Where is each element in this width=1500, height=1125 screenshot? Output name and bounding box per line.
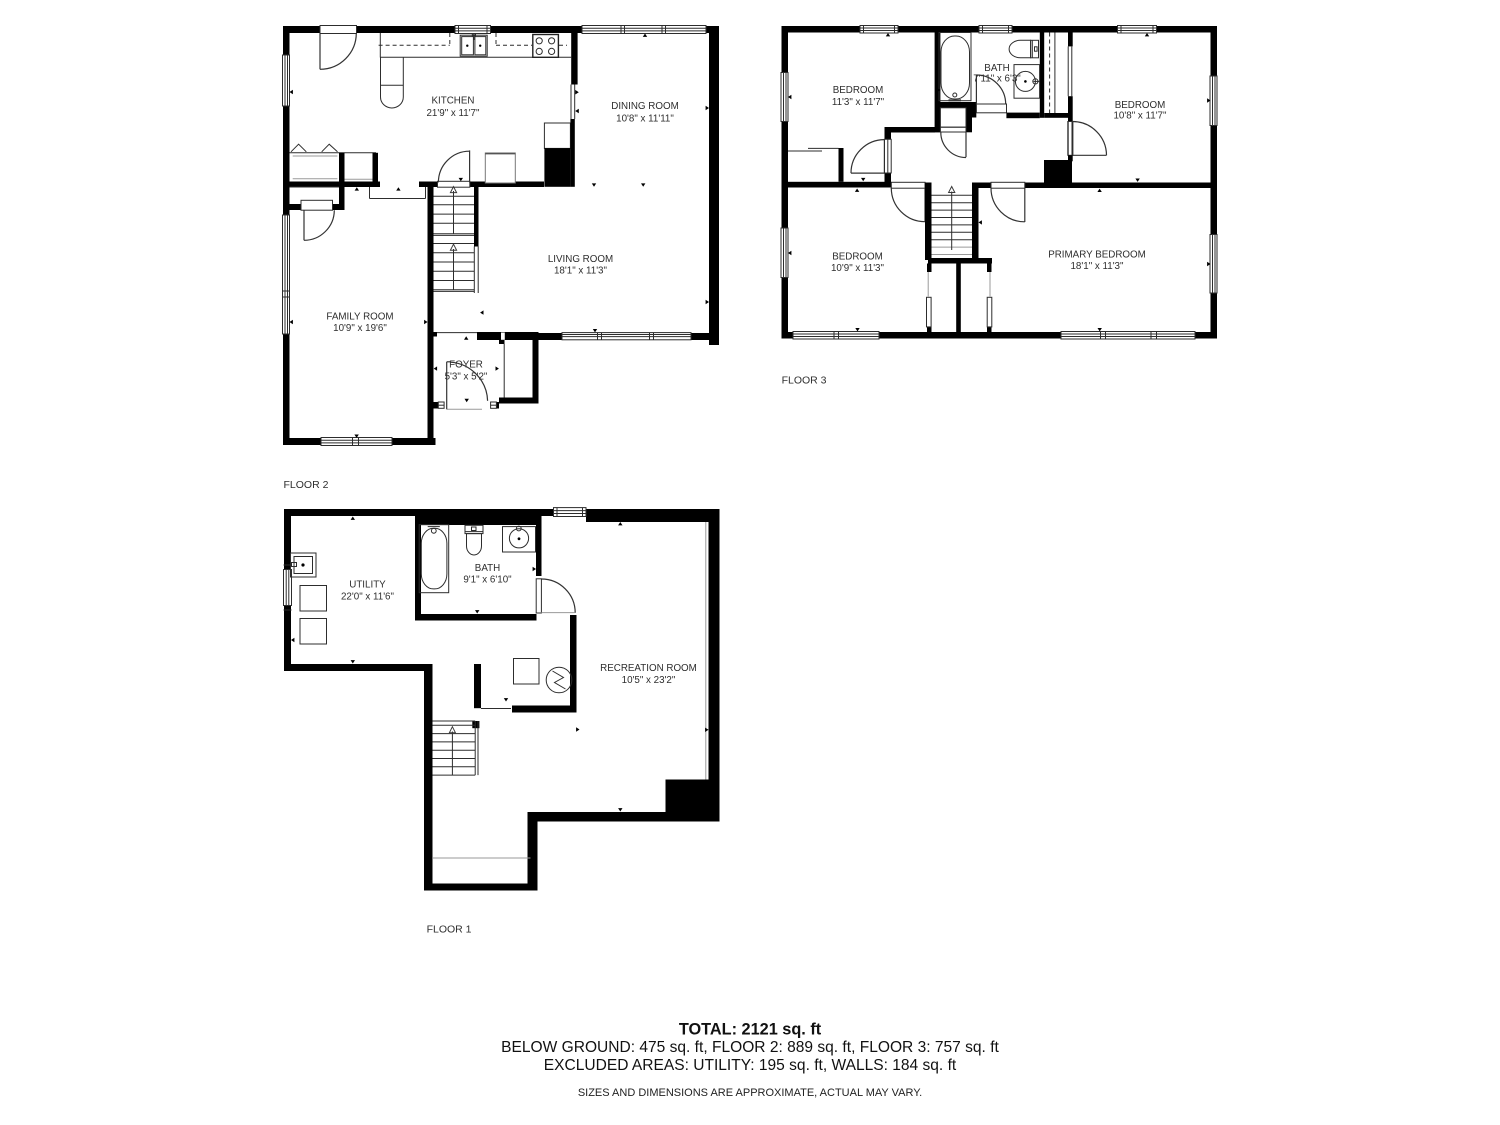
svg-text:RECREATION ROOM: RECREATION ROOM	[600, 663, 697, 674]
svg-text:10'8" x 11'11": 10'8" x 11'11"	[616, 114, 674, 125]
svg-text:PRIMARY BEDROOM: PRIMARY BEDROOM	[1048, 249, 1146, 260]
svg-text:BATH: BATH	[475, 563, 500, 574]
svg-text:FLOOR 2: FLOOR 2	[284, 479, 329, 491]
svg-text:FAMILY ROOM: FAMILY ROOM	[326, 311, 393, 322]
svg-text:FLOOR 1: FLOOR 1	[427, 924, 472, 936]
svg-text:FOYER: FOYER	[449, 359, 483, 370]
svg-text:FLOOR 3: FLOOR 3	[782, 374, 827, 386]
svg-text:BATH: BATH	[984, 63, 1009, 74]
svg-text:9'1" x 6'10": 9'1" x 6'10"	[463, 575, 512, 586]
svg-text:22'0" x 11'6": 22'0" x 11'6"	[341, 591, 395, 602]
svg-text:UTILITY: UTILITY	[349, 579, 386, 590]
svg-text:KITCHEN: KITCHEN	[431, 96, 474, 107]
svg-text:BEDROOM: BEDROOM	[833, 85, 884, 96]
svg-text:LIVING ROOM: LIVING ROOM	[548, 254, 613, 265]
svg-text:10'9" x 11'3": 10'9" x 11'3"	[831, 263, 885, 274]
svg-text:5'3" x 5'2": 5'3" x 5'2"	[445, 371, 488, 382]
svg-text:SIZES AND DIMENSIONS ARE APPRO: SIZES AND DIMENSIONS ARE APPROXIMATE, AC…	[578, 1087, 922, 1099]
svg-text:BEDROOM: BEDROOM	[1115, 100, 1166, 111]
svg-text:7'11" x 6'3": 7'11" x 6'3"	[973, 73, 1021, 84]
svg-text:18'1" x 11'3": 18'1" x 11'3"	[1070, 261, 1124, 272]
svg-text:21'9" x 11'7": 21'9" x 11'7"	[426, 108, 480, 119]
svg-text:EXCLUDED AREAS: UTILITY: 195 s: EXCLUDED AREAS: UTILITY: 195 sq. ft, WAL…	[544, 1057, 957, 1074]
svg-text:18'1" x 11'3": 18'1" x 11'3"	[554, 266, 608, 277]
svg-text:BELOW GROUND: 475 sq. ft, FLOO: BELOW GROUND: 475 sq. ft, FLOOR 2: 889 s…	[501, 1039, 999, 1056]
svg-text:BEDROOM: BEDROOM	[832, 252, 883, 263]
svg-text:DINING ROOM: DINING ROOM	[611, 101, 679, 112]
svg-text:11'3" x 11'7": 11'3" x 11'7"	[832, 97, 885, 108]
svg-text:10'8" x 11'7": 10'8" x 11'7"	[1113, 111, 1167, 122]
svg-text:TOTAL: 2121 sq. ft: TOTAL: 2121 sq. ft	[679, 1021, 822, 1039]
svg-text:10'5" x 23'2": 10'5" x 23'2"	[622, 675, 676, 686]
svg-text:10'9" x 19'6": 10'9" x 19'6"	[333, 323, 387, 334]
